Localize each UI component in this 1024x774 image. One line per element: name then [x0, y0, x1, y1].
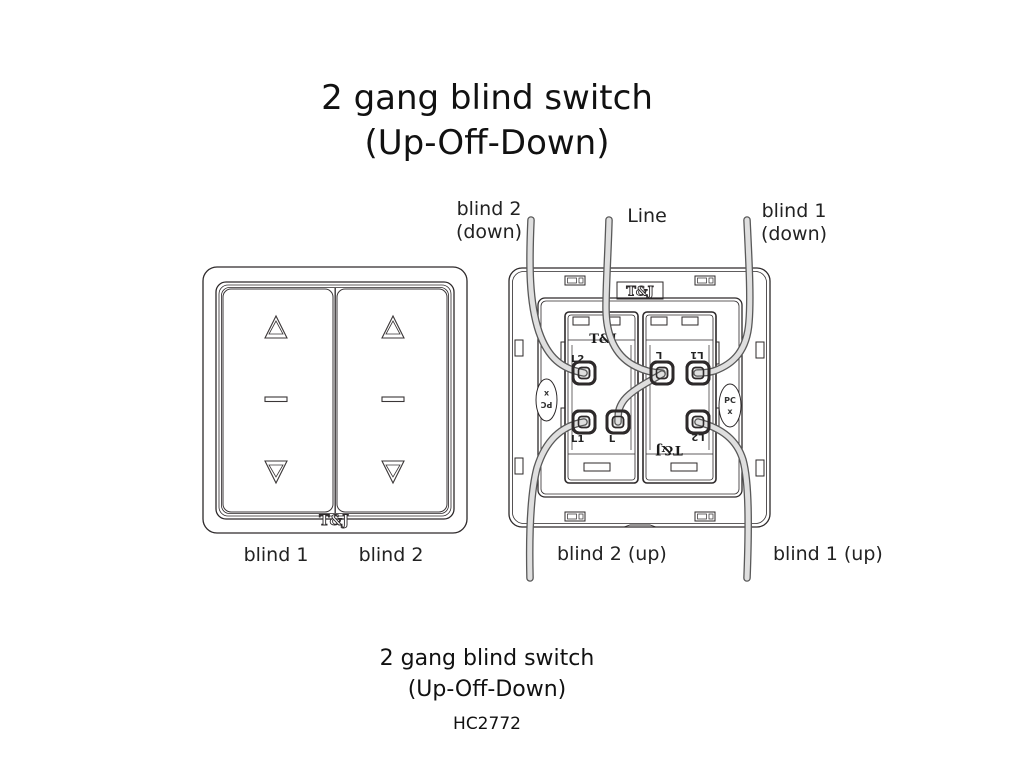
side-mark-right-line2: x	[727, 407, 733, 416]
label-blind1-down-line1: blind 1	[744, 200, 844, 223]
label-blind2-down-line2: (down)	[439, 221, 539, 244]
terminal-label-l-rotated: L	[655, 349, 662, 360]
label-blind1-down: blind 1 (down)	[744, 200, 844, 246]
label-blind1-up: blind 1 (up)	[773, 543, 883, 566]
page-title: 2 gang blind switch (Up-Off-Down)	[187, 76, 787, 166]
model-number: HC2772	[287, 709, 687, 740]
label-blind1: blind 1	[226, 544, 326, 567]
front-view-diagram: T&J	[195, 255, 480, 545]
module-right-brand-rotated: T&J	[655, 442, 683, 457]
label-blind2-down-line1: blind 2	[439, 198, 539, 221]
side-mark-right-line1: PC	[724, 396, 736, 405]
label-blind1-down-line2: (down)	[744, 223, 844, 246]
side-mark-left-line2: x	[543, 389, 549, 398]
terminal-label-l1-rotated: L1	[690, 349, 703, 360]
diagram-page: 2 gang blind switch (Up-Off-Down)	[0, 0, 1024, 774]
back-view-diagram: T&J	[500, 190, 800, 580]
terminal-label-l: L	[609, 434, 616, 445]
label-blind2-up: blind 2 (up)	[557, 543, 667, 566]
front-brand-logo: T&J	[319, 513, 349, 529]
caption: 2 gang blind switch (Up-Off-Down) HC2772	[287, 643, 687, 740]
plate-brand-logo: T&J	[626, 285, 654, 300]
page-title-line2: (Up-Off-Down)	[187, 121, 787, 166]
caption-line2: (Up-Off-Down)	[287, 674, 687, 705]
page-title-line1: 2 gang blind switch	[187, 76, 787, 121]
caption-line1: 2 gang blind switch	[287, 643, 687, 674]
plate-brand-box: T&J	[617, 282, 663, 300]
label-blind2: blind 2	[341, 544, 441, 567]
label-line: Line	[607, 205, 687, 228]
label-blind2-down: blind 2 (down)	[439, 198, 539, 244]
terminal-label-l1: L1	[571, 434, 584, 445]
side-mark-left-line1: PC	[541, 400, 553, 409]
